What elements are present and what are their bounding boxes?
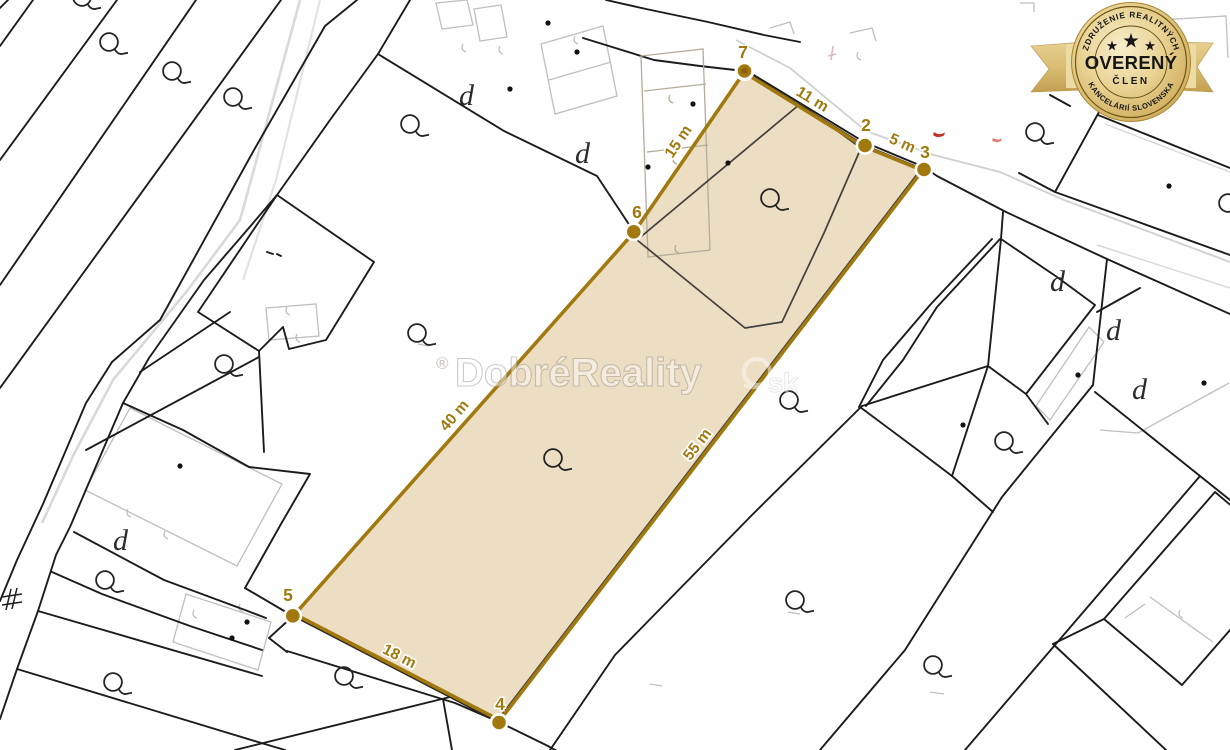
svg-text:5: 5 <box>283 585 293 605</box>
svg-text:6: 6 <box>632 202 642 222</box>
svg-text:ČLEN: ČLEN <box>1112 74 1149 87</box>
svg-text:2: 2 <box>861 115 871 135</box>
svg-text:d: d <box>1106 314 1122 347</box>
svg-text:7: 7 <box>738 42 748 62</box>
svg-text:d: d <box>113 524 129 557</box>
svg-text:sk: sk <box>768 368 799 398</box>
svg-text:®: ® <box>436 354 449 373</box>
svg-text:3: 3 <box>920 142 930 162</box>
svg-text:d: d <box>1132 373 1148 406</box>
svg-text:d: d <box>459 79 475 112</box>
svg-text:DobréReality: DobréReality <box>455 351 702 395</box>
svg-text:d: d <box>575 137 591 170</box>
svg-text:d: d <box>1050 265 1066 298</box>
svg-text:OVERENÝ: OVERENÝ <box>1085 52 1178 73</box>
svg-text:4: 4 <box>495 694 505 714</box>
